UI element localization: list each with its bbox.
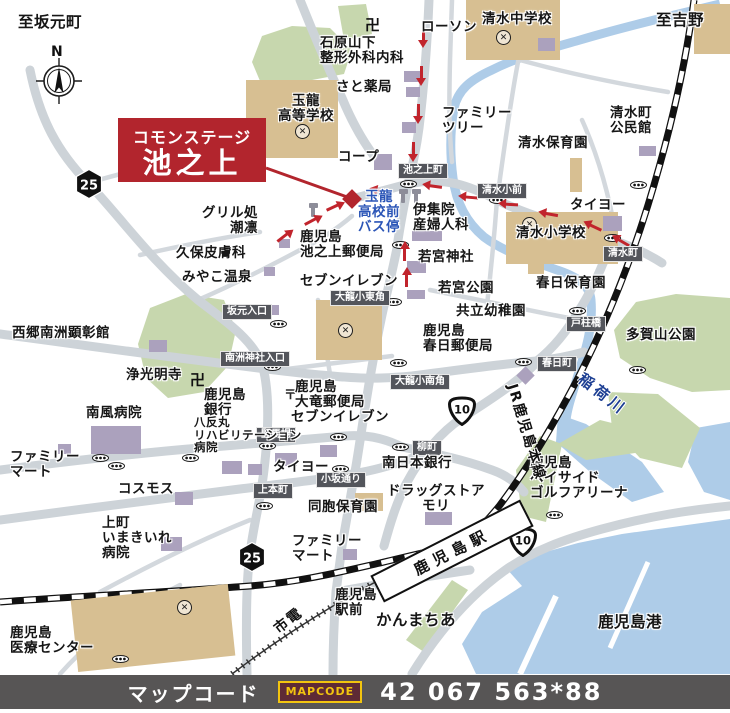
place-label: 玉龍 高校前 バス停 [350,190,408,235]
place-label: 清水小学校 [516,226,586,241]
place-label: 春日保育園 [536,276,606,291]
place-label: 至坂元町 [18,14,82,31]
place-label: 鹿児島 駅前 [335,588,377,618]
place-label: 石原山下 整形外科内科 [320,36,404,66]
destination-title-line2: 池之上 [118,148,266,178]
place-label: ファミリー マート [10,450,80,480]
place-label: セブンイレブン [291,410,389,425]
destination-title-line1: コモンステージ [118,124,266,148]
place-label: 清水町 公民館 [610,106,652,136]
rail-name-label: JR鹿児島本線 [503,381,551,482]
river-name-label: 稲荷川 [574,368,632,420]
place-label: 鹿児島 医療センター [10,626,94,656]
place-label: 玉龍 高等学校 [268,94,344,124]
place-label: 南日本銀行 [382,456,452,471]
place-label: 同胞保育園 [308,500,378,515]
place-label: ドラッグストア モリ [381,484,491,514]
place-label: 至吉野 [656,12,704,29]
destination-title-box: コモンステージ 池之上 [118,118,266,182]
place-label: コープ [338,150,379,165]
mapcode-bar: マップコード MAPCODE 42 067 563*88 [0,675,730,709]
place-label: グリル処 潮凛 [168,206,258,236]
place-label: 多賀山公園 [626,328,696,343]
place-label: 清水保育園 [518,136,588,151]
place-label: 鹿児島 大竜郵便局 [295,380,365,410]
place-label: 鹿児島 春日郵便局 [423,324,493,354]
place-label: 久保皮膚科 [176,246,246,261]
place-label: 共立幼稚園 [456,304,526,319]
place-label: かんまちあ [376,612,456,629]
place-label: 八反丸 リハビリテーション 病院 [194,416,302,454]
place-label: さと薬局 [336,80,392,95]
mapcode-logo: MAPCODE [278,681,363,702]
place-label: 鹿児島 池之上郵便局 [300,230,384,260]
mapcode-value: 42 067 563*88 [380,678,602,706]
place-label: 浄光明寺 [126,368,182,383]
place-label: 上町 いまきいれ 病院 [102,516,172,561]
place-label: 伊集院 産婦人科 [413,203,469,233]
place-label: 南風病院 [86,406,142,421]
place-label: 鹿児島 銀行 [204,388,246,418]
place-label: 西郷南洲顕彰館 [12,326,110,341]
place-label: みやこ温泉 [182,270,252,285]
rail-name-label: 市電 [269,602,307,637]
place-label: ファミリー ツリー [442,106,512,136]
place-label: タイヨー [570,198,626,213]
map-canvas: ✕✕✕✕✕卍卍〒25251010 池之上町清水小前清水町大龍小東角坂元入口南洲神… [0,0,730,675]
map-screenshot: ✕✕✕✕✕卍卍〒25251010 池之上町清水小前清水町大龍小東角坂元入口南洲神… [0,0,730,713]
place-label: コスモス [118,482,174,497]
place-label: 若宮公園 [438,281,494,296]
place-label: 鹿児島港 [598,614,662,631]
place-label: 若宮神社 [418,250,474,265]
place-label: 清水中学校 [482,12,552,27]
mapcode-label: マップコード [128,678,260,707]
place-label: ローソン [421,20,477,35]
place-label: セブンイレブン [300,274,398,289]
place-label: ファミリー マート [292,534,362,564]
labels-layer: 至坂元町至吉野ローソン清水中学校石原山下 整形外科内科さと薬局玉龍 高等学校ファ… [0,0,730,675]
place-label: タイヨー [273,460,329,475]
